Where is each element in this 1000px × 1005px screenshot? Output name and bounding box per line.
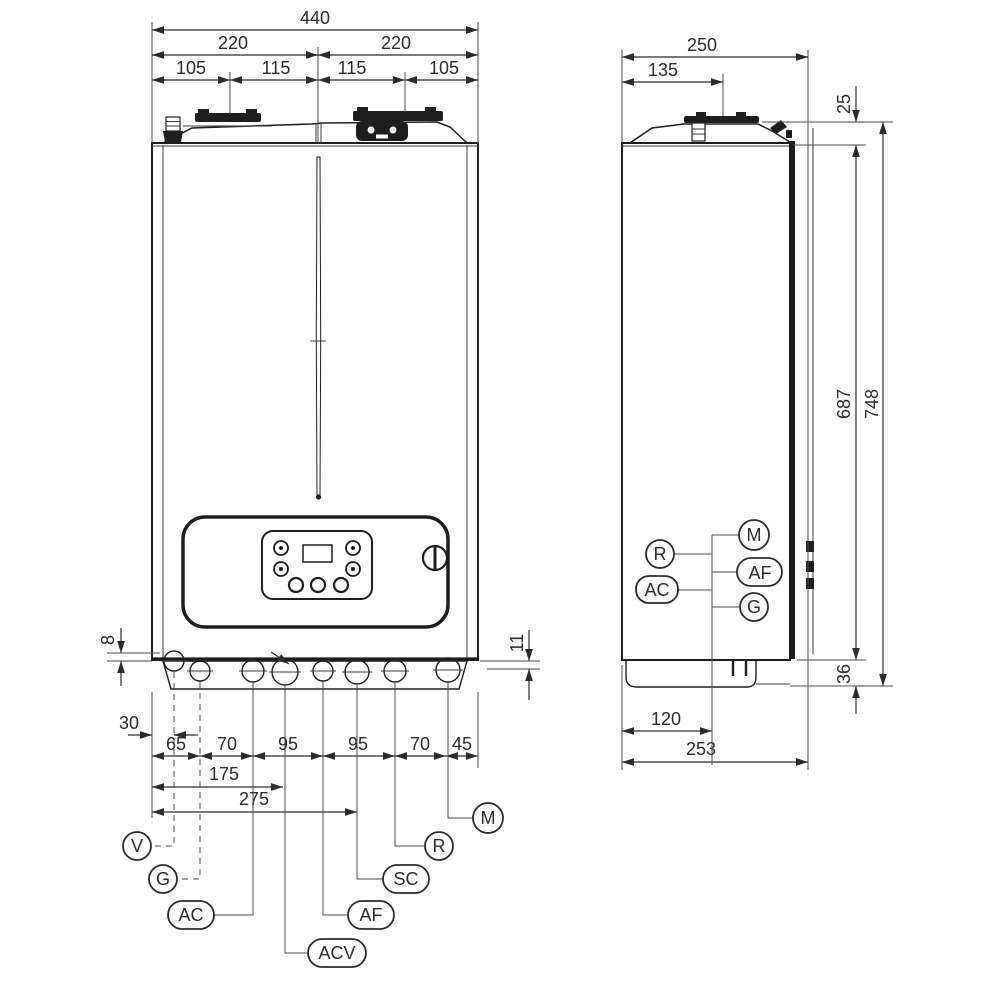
connection-label-g-side: G: [747, 597, 761, 617]
flue-cap-lug: [736, 112, 746, 116]
connection-label-m-side: M: [747, 525, 762, 545]
button: [334, 578, 348, 592]
top-bracket-pin: [786, 130, 792, 138]
button: [311, 578, 325, 592]
technical-drawing: 440 220 220 105 115 115 105 8: [0, 0, 1000, 1000]
valve-base: [163, 131, 183, 142]
dim-to-sc: 275: [239, 789, 269, 809]
seam-needle: [316, 157, 320, 495]
leader-v: [151, 672, 174, 846]
leader-sc: [357, 685, 383, 879]
dim-115-right: 115: [338, 58, 367, 78]
leader-af: [323, 682, 348, 915]
dim-105-right: 105: [429, 58, 459, 78]
flue-clamp-eye: [390, 127, 397, 134]
flue-clamp-slot: [376, 135, 388, 139]
leader-r: [395, 683, 425, 846]
button: [289, 578, 303, 592]
knob-dot: [351, 567, 355, 571]
flue-clamp-eye: [368, 127, 375, 134]
connection-label-sc: SC: [393, 869, 418, 889]
side-view: 250 135 25 687 748 36 120 253: [622, 35, 893, 770]
connection-label-af: AF: [359, 905, 382, 925]
wall-hook: [806, 561, 814, 572]
knob-dot: [279, 567, 283, 571]
connection-label-m: M: [481, 808, 496, 828]
intake-lug: [246, 109, 257, 114]
intake-lug: [198, 109, 209, 114]
flue-connector: [353, 107, 443, 141]
flue-cap-plate: [684, 116, 759, 123]
panel-buttons: [274, 541, 360, 592]
pipe-ports: [161, 651, 463, 685]
dim-pipe-drop: 11: [507, 634, 527, 653]
dim-chain-70-left: 70: [217, 734, 237, 754]
wall-hook: [806, 578, 814, 589]
front-view: 440 220 220 105 115 115 105 8: [98, 8, 540, 967]
dim-valve-offset: 30: [119, 713, 139, 733]
hydraulic-connections-front: [161, 651, 467, 689]
connection-label-g: G: [156, 869, 170, 889]
knob-dot: [279, 546, 283, 550]
dim-casing-height: 687: [834, 389, 854, 419]
dim-chain-95-left: 95: [278, 734, 298, 754]
pressure-gauge: [423, 545, 447, 571]
leader-g: [177, 682, 200, 879]
connection-label-v: V: [131, 836, 143, 856]
leader-acv: [285, 686, 308, 953]
dim-half-width-left: 220: [218, 33, 248, 53]
control-panel: [183, 517, 448, 627]
connection-label-acv: ACV: [318, 943, 355, 963]
lcd-display: [303, 545, 332, 562]
dim-to-acv: 175: [209, 764, 239, 784]
flue-lug: [425, 107, 436, 112]
flue-lug: [357, 107, 368, 112]
side-bottom-tray: [626, 660, 756, 687]
connection-label-ac: AC: [178, 905, 203, 925]
dim-conn-offset: 120: [651, 709, 681, 729]
valve-body: [166, 117, 180, 131]
flue-bar: [353, 111, 443, 121]
air-intake-connector: [183, 109, 272, 126]
front-center-seam: [310, 157, 326, 500]
flue-cap-lug: [696, 112, 706, 116]
dim-half-width-right: 220: [381, 33, 411, 53]
connection-label-af-side: AF: [748, 563, 771, 583]
side-top-cap: [630, 124, 790, 143]
connection-label-r-side: R: [654, 544, 667, 564]
dim-chain-70-right: 70: [410, 734, 430, 754]
air-vent-valve: [163, 117, 183, 142]
control-panel-outline: [183, 517, 448, 627]
front-connection-labels: V G AC ACV AF SC R M: [123, 803, 503, 967]
intake-bar: [195, 113, 261, 122]
dim-chain-65: 65: [166, 734, 186, 754]
dim-total-width: 440: [300, 8, 330, 28]
dim-chain-45: 45: [452, 734, 472, 754]
flue-collar: [692, 123, 705, 141]
knob-dot: [351, 546, 355, 550]
dim-total-height: 748: [862, 389, 882, 419]
dim-valve-drop: 8: [98, 635, 118, 645]
front-top-cap: [163, 122, 467, 143]
connection-label-r: R: [433, 836, 446, 856]
front-casing-outline: [152, 143, 478, 660]
side-connection-labels: R AC M AF G: [636, 520, 782, 621]
dim-top-clearance: 25: [834, 94, 854, 114]
back-plate: [789, 141, 795, 659]
dim-115-left: 115: [262, 58, 291, 78]
dim-chain-95-right: 95: [348, 734, 368, 754]
boiler-dimensional-drawing: 440 220 220 105 115 115 105 8: [0, 0, 1000, 1000]
dim-flue-offset: 135: [648, 60, 678, 80]
dim-base-height: 36: [834, 664, 854, 684]
dim-105-left: 105: [176, 58, 206, 78]
wall-hook: [806, 541, 814, 552]
seam-end-dot: [316, 494, 321, 499]
connection-label-ac-side: AC: [644, 580, 669, 600]
dim-depth: 250: [687, 35, 717, 55]
